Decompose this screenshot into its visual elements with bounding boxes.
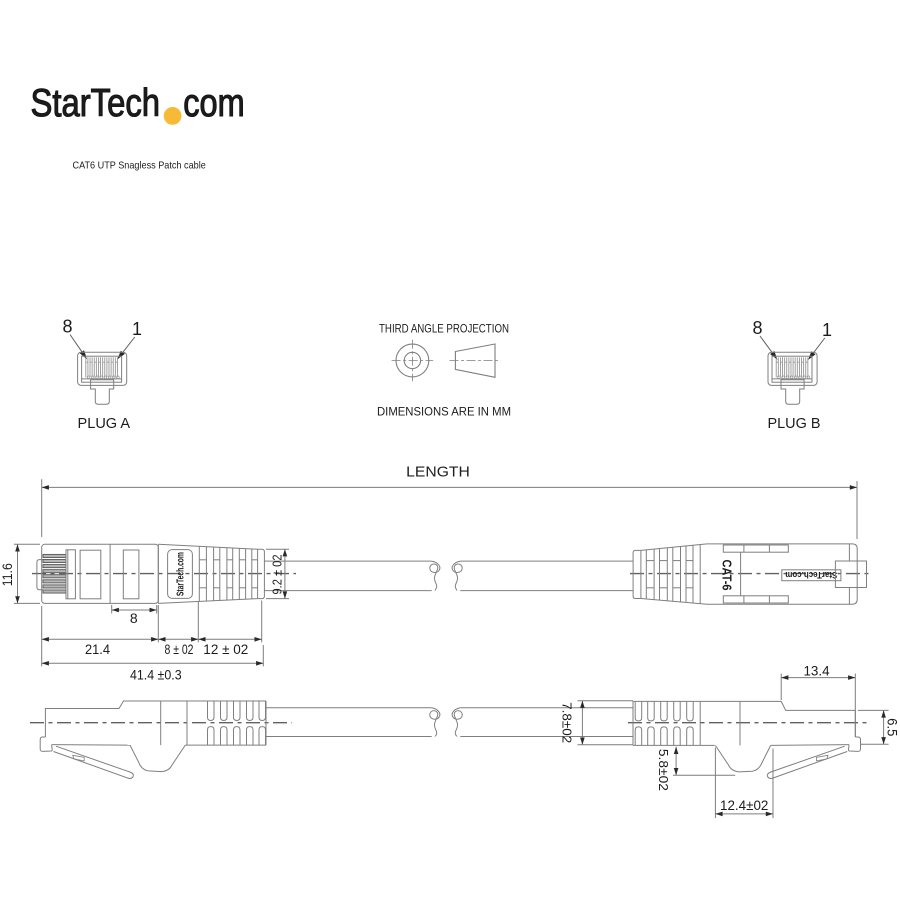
svg-text:6.5: 6.5	[885, 718, 900, 736]
svg-text:1: 1	[132, 319, 142, 339]
svg-text:StarTech.com: StarTech.com	[785, 570, 837, 580]
svg-text:PLUG A: PLUG A	[78, 415, 131, 432]
svg-text:8 ± 02: 8 ± 02	[165, 641, 194, 657]
svg-text:13.4: 13.4	[803, 663, 829, 679]
svg-text:11.6: 11.6	[0, 563, 15, 586]
svg-text:StarTech.com: StarTech.com	[176, 552, 187, 596]
svg-text:41.4 ±0.3: 41.4 ±0.3	[130, 666, 182, 682]
svg-text:7.8±02: 7.8±02	[560, 702, 575, 743]
svg-text:5.8±02: 5.8±02	[656, 749, 671, 791]
svg-text:21.4: 21.4	[85, 641, 110, 657]
svg-text:12.4±02: 12.4±02	[720, 797, 769, 813]
svg-text:com: com	[183, 82, 244, 125]
svg-text:8: 8	[62, 317, 72, 337]
svg-text:DIMENSIONS ARE IN MM: DIMENSIONS ARE IN MM	[377, 405, 511, 419]
svg-text:1: 1	[822, 320, 832, 340]
svg-text:12 ± 02: 12 ± 02	[203, 641, 248, 657]
svg-text:8: 8	[752, 318, 762, 338]
svg-text:StarTech: StarTech	[31, 82, 161, 125]
svg-text:8: 8	[130, 610, 138, 626]
svg-text:9.2 ± 02: 9.2 ± 02	[270, 555, 285, 595]
svg-text:CAT6 UTP Snagless Patch cable: CAT6 UTP Snagless Patch cable	[73, 159, 206, 171]
svg-text:LENGTH: LENGTH	[406, 463, 470, 480]
svg-text:THIRD ANGLE PROJECTION: THIRD ANGLE PROJECTION	[379, 322, 509, 336]
svg-text:CAT-6: CAT-6	[719, 560, 733, 591]
svg-text:PLUG B: PLUG B	[768, 415, 821, 432]
